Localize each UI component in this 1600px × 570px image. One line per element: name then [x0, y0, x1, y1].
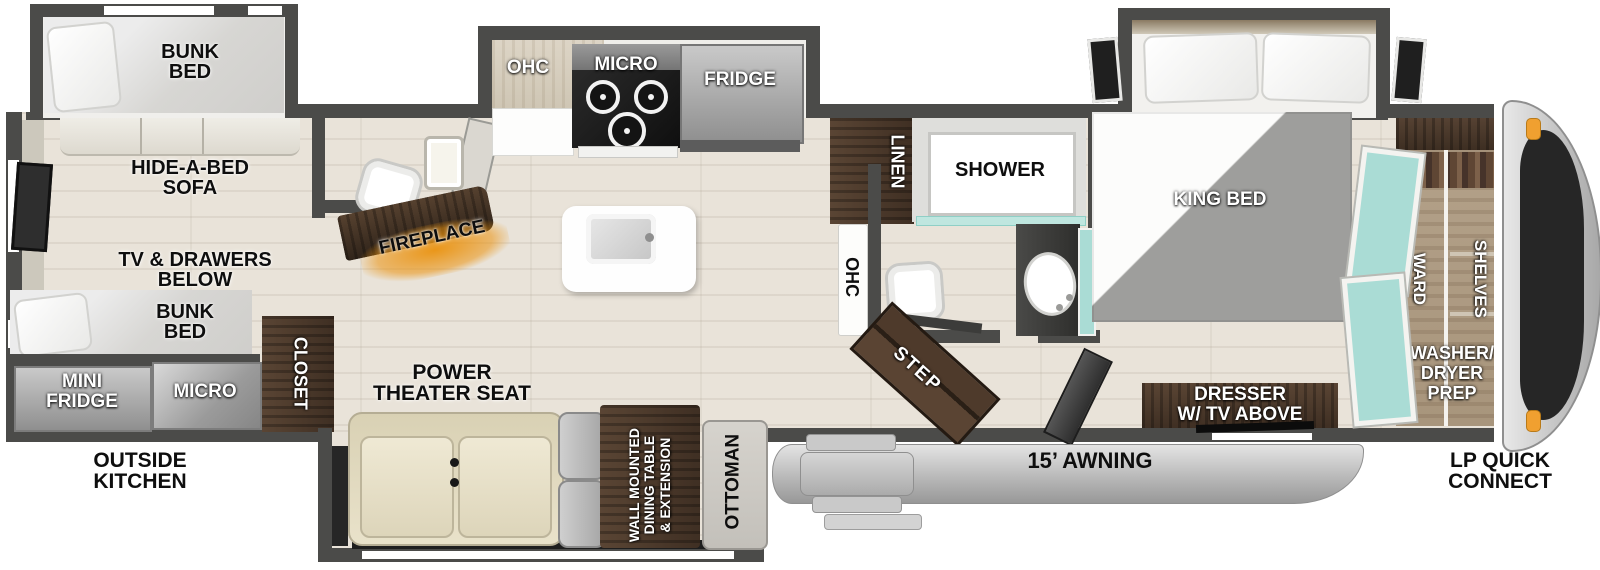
stove-burner-3: [608, 112, 646, 150]
kitchen-counter-left: [492, 108, 574, 156]
wall-top-2: [806, 104, 1124, 118]
ward-top-cabinet: [1396, 118, 1496, 154]
entry-step-bracket-bottom: [812, 496, 902, 513]
wall-top-3: [1384, 104, 1496, 118]
kitchen-slide-wall-left: [478, 26, 492, 118]
dining-table-line2: DINING TABLE: [642, 415, 657, 555]
stove-burner-2: [634, 80, 668, 114]
king-window-right: [1391, 37, 1426, 103]
bunk-bed-top-pillow: [46, 21, 123, 114]
outside-kitchen-line2: KITCHEN: [40, 471, 240, 492]
entry-step-lower: [824, 514, 922, 530]
bottom-slide-wall-left: [318, 428, 332, 562]
tv-drawers-line2: BELOW: [95, 270, 295, 290]
awning-label: 15’ AWNING: [1000, 450, 1180, 472]
kitchen-slide-wall-top: [478, 26, 820, 40]
bunk-bed-bottom-line2: BED: [130, 322, 240, 342]
king-pillow-left: [1143, 32, 1259, 104]
bunk-bed-top-line2: BED: [130, 62, 250, 82]
lp-line2: CONNECT: [1420, 471, 1580, 492]
bunk-bed-bottom-pillow: [13, 292, 94, 359]
stove-burner-1: [586, 80, 620, 114]
bunk-slide-window-2: [248, 6, 282, 15]
king-bed-label: KING BED: [1160, 190, 1280, 210]
theater-seat-label: POWER THEATER SEAT: [352, 362, 552, 405]
rv-floorplan: BUNK BED HIDE-A-BED SOFA TV & DRAWERS BE…: [0, 0, 1600, 570]
bath-vanity-faucet-2: [1066, 294, 1073, 301]
bunk-bed-top-label: BUNK BED: [130, 42, 250, 83]
lp-quick-connect-label: LP QUICK CONNECT: [1420, 450, 1580, 493]
tv-drawers-line1: TV & DRAWERS: [95, 250, 295, 270]
theater-seat-cushion-right: [458, 436, 552, 538]
dining-chair-lower: [558, 480, 606, 548]
outside-kitchen-label: OUTSIDE KITCHEN: [40, 450, 240, 493]
entry-step-mid: [800, 452, 914, 496]
dining-table-label: WALL MOUNTED DINING TABLE & EXTENSION: [627, 415, 673, 555]
bath-ohc-label: OHC: [843, 247, 861, 307]
theater-seat-line2: THEATER SEAT: [352, 383, 552, 404]
theater-console-dot-1: [450, 458, 459, 467]
entry-step-bracket-top: [806, 434, 896, 451]
bunk-slide-wall-left: [30, 4, 43, 118]
theater-seat-cushion-left: [360, 436, 454, 538]
dresser-label: DRESSER W/ TV ABOVE: [1152, 385, 1328, 425]
king-pillow-right: [1261, 32, 1371, 104]
dresser-tv-base: [1212, 433, 1312, 440]
lp-line1: LP QUICK: [1420, 450, 1580, 471]
kitchen-fridge: [680, 44, 804, 144]
ward-label: WARD: [1410, 243, 1428, 315]
bunk-slide-window-1: [104, 6, 214, 15]
bottom-slide-tv: [332, 446, 348, 546]
king-window-left: [1087, 37, 1122, 103]
tv-drawers-label: TV & DRAWERS BELOW: [95, 250, 295, 291]
kitchen-fridge-label: FRIDGE: [692, 70, 788, 90]
kitchen-range-front: [578, 146, 678, 158]
dining-table-line3: & EXTENSION: [658, 415, 673, 555]
island-sink-faucet: [645, 233, 654, 242]
dining-chair-upper: [558, 412, 606, 480]
bath-vanity-faucet-1: [1056, 304, 1063, 311]
kitchen-fridge-base: [680, 140, 800, 152]
outside-kitchen-line1: OUTSIDE: [40, 450, 240, 471]
shower-label: SHOWER: [944, 160, 1056, 180]
sofa-seam-2: [202, 118, 204, 154]
hide-a-bed-label: HIDE-A-BED SOFA: [95, 158, 285, 199]
king-bed: [1092, 112, 1352, 322]
linen-label: LINEN: [888, 107, 907, 215]
mini-fridge-line1: MINI: [22, 372, 142, 392]
kitchen-micro-label: MICRO: [582, 55, 670, 75]
front-cap-windshield: [1520, 130, 1584, 420]
hide-a-bed-sofa: [60, 118, 300, 156]
king-headboard: [1132, 20, 1376, 34]
bunk-bed-top-line1: BUNK: [130, 42, 250, 62]
bunk-slide-wall-right: [285, 4, 298, 118]
marker-light-bottom: [1526, 410, 1541, 432]
tv-left-wall: [11, 162, 53, 252]
kitchen-ohc-label: OHC: [498, 58, 558, 78]
king-slide-wall-left: [1118, 8, 1132, 118]
micro-outside-label: MICRO: [158, 382, 252, 402]
ottoman-label: OTTOMAN: [723, 427, 742, 537]
mini-fridge-label: MINI FRIDGE: [22, 372, 142, 412]
dresser-line1: DRESSER: [1152, 385, 1328, 405]
closet-label: CLOSET: [291, 318, 310, 428]
theater-seat-line1: POWER: [352, 362, 552, 383]
mirror-door-lower: [1342, 274, 1417, 427]
bunk-bed-bottom-line1: BUNK: [130, 302, 240, 322]
bunk-bed-bottom-label: BUNK BED: [130, 302, 240, 343]
halfbath-sink: [424, 136, 464, 190]
king-slide-wall-right: [1376, 8, 1390, 118]
marker-light-top: [1526, 118, 1541, 140]
sofa-seam-1: [140, 118, 142, 154]
washer-dryer-line1: WASHER/: [1396, 344, 1508, 364]
hide-a-bed-line1: HIDE-A-BED: [95, 158, 285, 178]
bottom-slide-window: [362, 551, 734, 559]
shelves-label: SHELVES: [1471, 229, 1489, 329]
hide-a-bed-line2: SOFA: [95, 178, 285, 198]
mini-fridge-line2: FRIDGE: [22, 392, 142, 412]
theater-console-dot-2: [450, 478, 459, 487]
kitchen-slide-wall-right: [806, 26, 820, 118]
